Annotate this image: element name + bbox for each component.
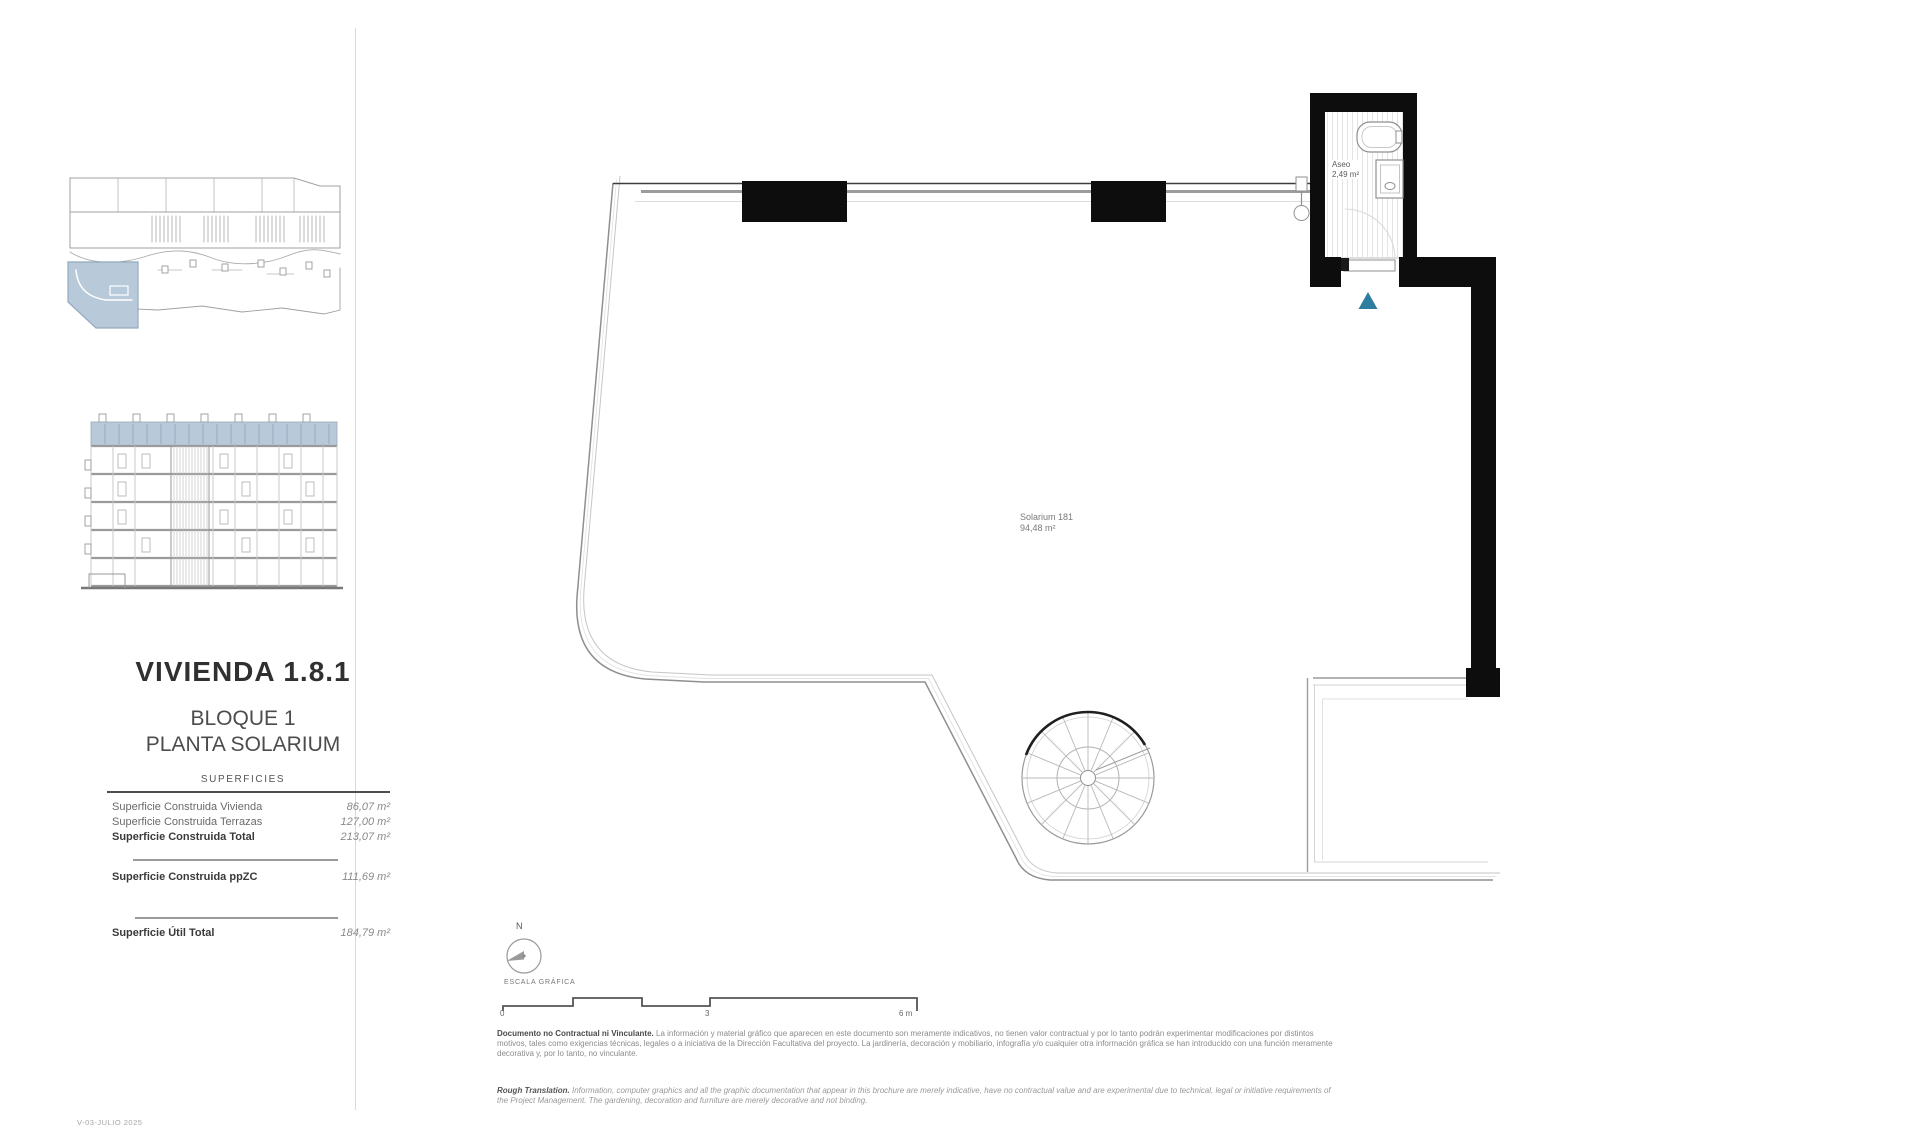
north-compass (507, 939, 542, 973)
room-name: Aseo (1332, 160, 1359, 170)
outdoor-shower-icon (1294, 177, 1309, 221)
version-label: V-03-JULIO 2025 (77, 1118, 142, 1127)
aseo-label: Aseo 2,49 m² (1331, 160, 1360, 179)
brochure-page: VIVIENDA 1.8.1 BLOQUE 1 PLANTA SOLARIUM … (0, 0, 1920, 1140)
disclaimer-es: Documento no Contractual ni Vinculante. … (497, 1029, 1337, 1059)
scale-tick-3: 3 (705, 1009, 709, 1018)
spiral-staircase (1022, 712, 1154, 844)
surface-row: Superficie Construida Terrazas 127,00 m² (107, 816, 390, 828)
bathroom (1294, 93, 1417, 287)
room-area: 2,49 m² (1332, 170, 1359, 180)
disclaimer-en: Rough Translation. Information, computer… (497, 1086, 1337, 1106)
surface-label: Superficie Construida Vivienda (107, 801, 262, 813)
room-name: Solarium 181 (1020, 512, 1073, 523)
side-balconies (85, 460, 91, 554)
floor-plan (577, 93, 1500, 880)
top-wall (613, 181, 1310, 222)
roof-elements (99, 414, 310, 422)
surface-label: Superficie Construida Terrazas (107, 816, 262, 828)
surface-value: 111,69 m² (342, 871, 390, 883)
surfaces-rule (135, 917, 338, 919)
scale-bar (503, 998, 917, 1011)
north-label: N (516, 921, 523, 931)
surface-value: 213,07 m² (340, 831, 390, 843)
block-label: BLOQUE 1 (90, 706, 396, 732)
surface-label: Superficie Construida ppZC (107, 871, 257, 883)
surfaces-rule (133, 859, 338, 861)
solarium-level-highlight (91, 422, 337, 446)
structural-wall (1399, 257, 1500, 697)
building-elevation (81, 414, 343, 588)
surface-row: Superficie Construida Total 213,07 m² (107, 831, 390, 843)
surface-label: Superficie Útil Total (107, 927, 214, 939)
disclaimer-en-lead: Rough Translation. (497, 1086, 570, 1095)
surface-value: 127,00 m² (340, 816, 390, 828)
lower-terrace-edges (1308, 678, 1489, 872)
surface-row: Superficie Construida ppZC 111,69 m² (107, 871, 390, 883)
surface-row: Superficie Útil Total 184,79 m² (107, 927, 390, 939)
block-floor-subtitle: BLOQUE 1 PLANTA SOLARIUM (90, 706, 396, 758)
disclaimer-en-body: Information, computer graphics and all t… (497, 1086, 1331, 1105)
sidebar-divider (355, 28, 356, 1110)
page-title: VIVIENDA 1.8.1 (90, 656, 396, 688)
sink-icon (1376, 160, 1403, 198)
surface-label: Superficie Construida Total (107, 831, 255, 843)
balcony-hatch (152, 216, 324, 242)
surfaces-heading-rule (107, 791, 390, 793)
architectural-drawing (0, 0, 1920, 1140)
scale-bar-title: ESCALA GRÁFICA (504, 979, 576, 986)
toilet-icon (1357, 122, 1402, 152)
floor-slabs (91, 446, 337, 586)
solarium-label: Solarium 181 94,48 m² (1020, 512, 1073, 533)
surface-row: Superficie Construida Vivienda 86,07 m² (107, 801, 390, 813)
disclaimer-es-lead: Documento no Contractual ni Vinculante. (497, 1029, 654, 1038)
floor-label: PLANTA SOLARIUM (90, 732, 396, 758)
surfaces-heading: SUPERFICIES (90, 774, 396, 785)
scale-tick-0: 0 (500, 1009, 504, 1018)
site-key-plan (68, 178, 340, 328)
surface-value: 86,07 m² (347, 801, 390, 813)
scale-tick-6m: 6 m (899, 1009, 912, 1018)
surface-value: 184,79 m² (340, 927, 390, 939)
room-area: 94,48 m² (1020, 523, 1073, 534)
stair-core-hatch (171, 446, 209, 586)
column-markers (162, 260, 330, 277)
entry-marker (1359, 292, 1378, 309)
